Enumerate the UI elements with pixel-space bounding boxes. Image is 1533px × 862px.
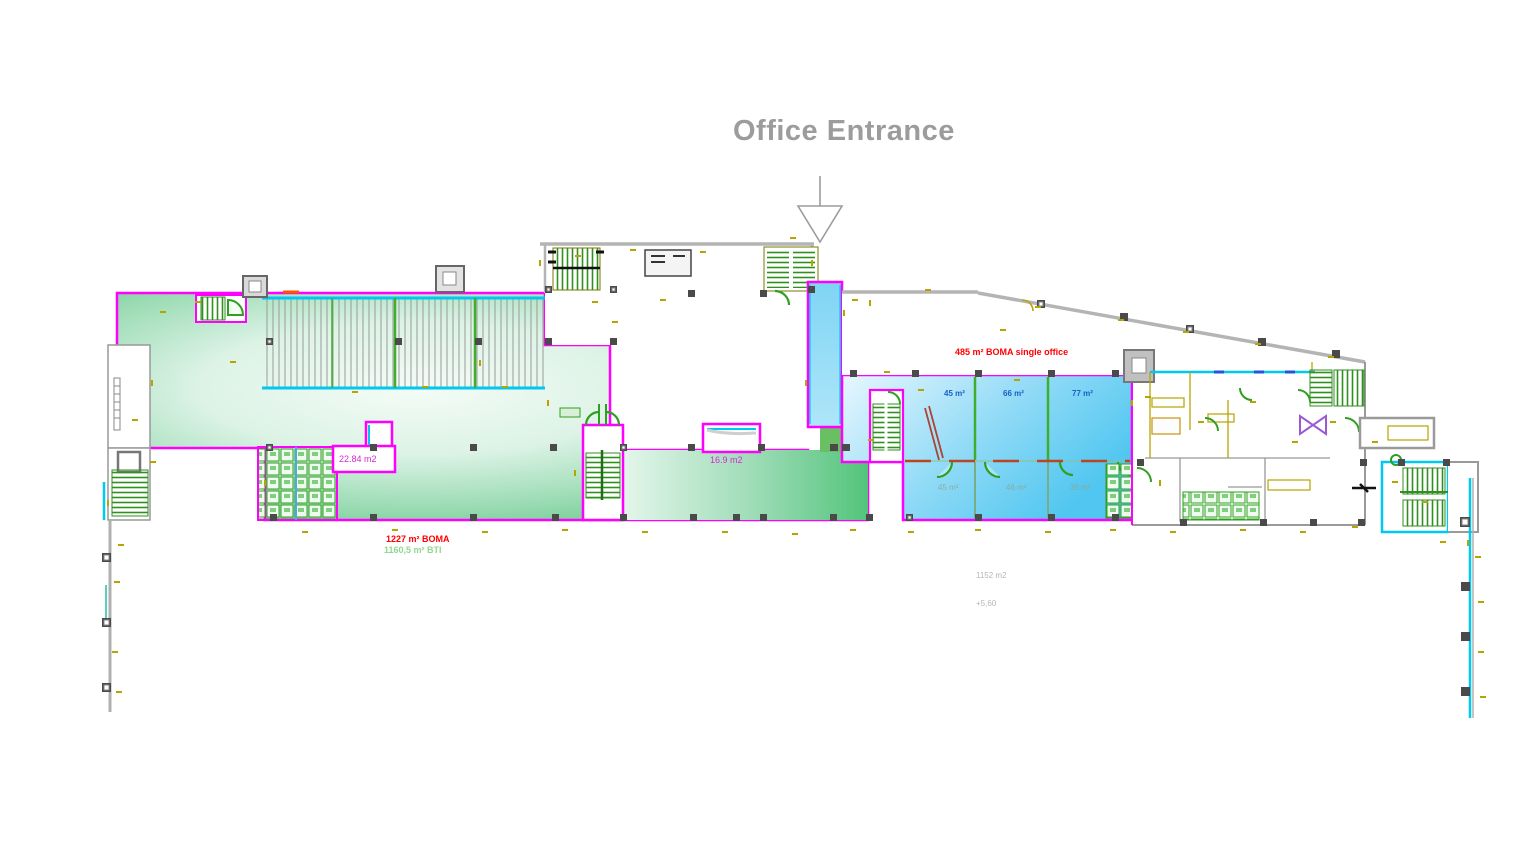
label-office-45: 45 m² [944,390,965,399]
label-room-16-9: 16.9 m2 [710,456,743,466]
ramp-hatch-strip [262,297,545,388]
entrance-arrow [798,176,842,242]
label-room-22-84: 22.84 m2 [339,455,377,465]
left-service-rooms [108,345,150,520]
floor-plan-canvas: Office Entrance 22.84 m2 16.9 m2 1227 m²… [0,0,1533,862]
label-bti-left: 1160,5 m² BTI [384,546,442,556]
core-room-16-9 [703,424,760,452]
office-entrance-title: Office Entrance [733,116,955,148]
label-boma-left: 1227 m² BOMA [386,535,450,545]
label-office-77: 77 m² [1072,390,1093,399]
label-office-35b: 35 m² [1070,484,1090,493]
label-level-note: +5,60 [976,600,996,609]
label-office-45b: 45 m² [938,484,958,493]
toilets-left-wing [258,447,337,520]
stair-bottom-right [1352,455,1478,718]
label-office-66: 66 m² [1003,390,1024,399]
label-office-46b: 46 m² [1006,484,1026,493]
label-boma-right: 485 m² BOMA single office [955,348,1068,358]
label-area-note: 1152 m2 [976,572,1007,581]
